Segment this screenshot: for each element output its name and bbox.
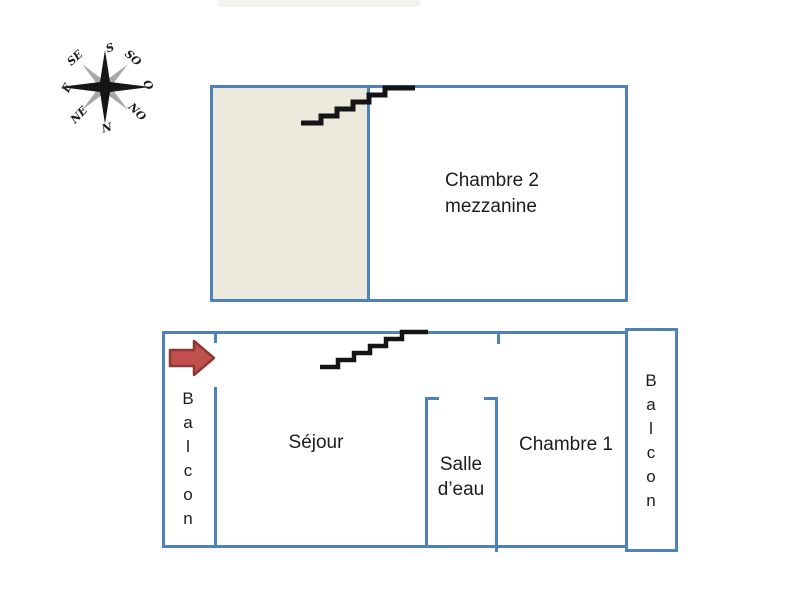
vertical-letter: o [168, 483, 208, 507]
salle-eau-left-wall-return [425, 397, 439, 400]
room-label-salle-eau: Salle d’eau [424, 452, 498, 502]
entrance-arrow-icon [166, 336, 218, 382]
balcony-left-wall [214, 387, 217, 548]
vertical-letter: a [168, 411, 208, 435]
room-label-balcon-left: Balcon [168, 387, 208, 531]
vertical-letter: c [168, 459, 208, 483]
salle-eau-right-wall-return [484, 397, 498, 400]
vertical-letter: B [168, 387, 208, 411]
vertical-letter: n [168, 507, 208, 531]
vertical-letter: B [631, 369, 671, 393]
room-label-balcon-right: Balcon [631, 369, 671, 513]
vertical-letter: c [631, 441, 671, 465]
vertical-letter: a [631, 393, 671, 417]
chambre1-partition-top-segment [497, 331, 500, 344]
room-label-salle-eau-line2: d’eau [424, 477, 498, 502]
room-label-chambre2: Chambre 2 mezzanine [445, 168, 625, 220]
room-label-chambre2-line2: mezzanine [445, 194, 625, 220]
floor-plan-page: S SO O NO N NE E SE Chambre 2 mezzanine … [0, 0, 800, 600]
vertical-letter: l [631, 417, 671, 441]
room-label-chambre2-line1: Chambre 2 [445, 168, 625, 194]
vertical-letter: l [168, 435, 208, 459]
room-label-salle-eau-line1: Salle [424, 452, 498, 477]
stairs-lower-icon [315, 326, 435, 374]
compass-rose: S SO O NO N NE E SE [36, 22, 176, 154]
room-label-sejour: Séjour [261, 430, 371, 456]
vertical-letter: n [631, 489, 671, 513]
cropped-title-remnant [218, 0, 420, 7]
room-label-chambre1: Chambre 1 [506, 432, 626, 458]
vertical-letter: o [631, 465, 671, 489]
stairs-upper-icon [295, 80, 425, 135]
